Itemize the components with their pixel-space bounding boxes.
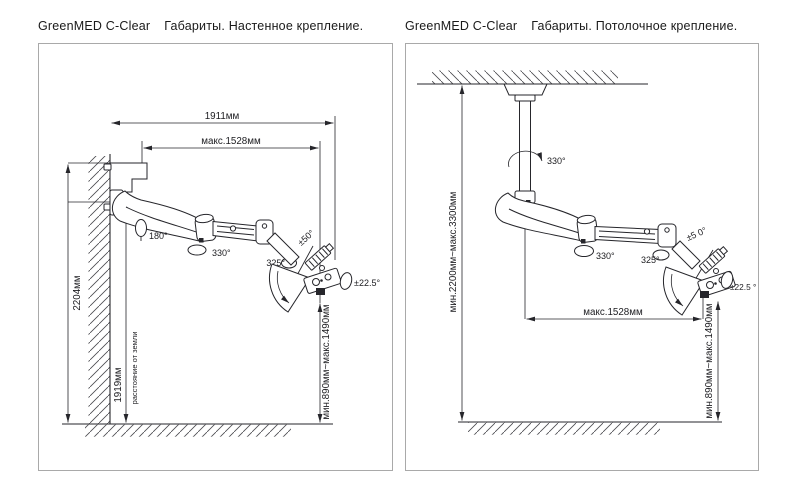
dim-label-head-range: мин.890мм~макс.1490мм xyxy=(321,304,332,420)
dim-label-column-range: мин.2200мм~макс.3300мм xyxy=(448,191,459,312)
rotation-cup-symbol xyxy=(188,245,206,255)
angle-label-arm: 330° xyxy=(596,251,615,261)
dim-label-max-ext: макс.1528мм xyxy=(583,307,643,318)
floor-hatching xyxy=(85,425,291,437)
dim-label-reach: 1911мм xyxy=(205,111,240,122)
head-tilt-symbol xyxy=(339,271,354,290)
technical-drawing: 1911мм макс.1528мм 2204мм 1919мм расстоя… xyxy=(0,0,800,500)
joint-detail xyxy=(199,238,204,243)
joint-detail xyxy=(581,239,586,244)
elbow-link xyxy=(672,241,700,269)
rotation-cup-symbol xyxy=(575,246,594,257)
angle-label-column: 330° xyxy=(547,156,566,166)
drop-column xyxy=(520,101,531,191)
dim-label-max-ext: макс.1528мм xyxy=(201,136,261,147)
spring-arm xyxy=(213,220,273,244)
angle-label-elbow: ±5 0° xyxy=(685,225,709,243)
dim-label-pivot-height: 1919мм xyxy=(113,367,124,403)
tilt-sector xyxy=(270,264,310,312)
angle-label-elbow: ±50° xyxy=(296,228,317,248)
ceiling-hatching xyxy=(432,71,618,84)
angle-label-spring: 325° xyxy=(641,255,660,265)
ceiling-mount-drawing: мин.2200мм~макс.3300мм 330° 330° xyxy=(417,71,756,435)
angle-label-head: ±22.5° xyxy=(354,278,380,288)
dim-note-ground: расстояние от земли xyxy=(130,332,139,405)
lamp-base-block xyxy=(700,291,709,298)
angle-label-arm: 330° xyxy=(212,248,231,258)
wall-mount-drawing: 1911мм макс.1528мм 2204мм 1919мм расстоя… xyxy=(62,111,380,437)
main-arm xyxy=(495,193,592,242)
dim-label-head-range: мин.890мм~макс.1490мм xyxy=(704,303,715,419)
floor-hatching xyxy=(468,423,660,435)
angle-label-head: ±22.5 ° xyxy=(730,282,756,292)
ceiling-mount xyxy=(504,84,547,205)
lamp-head xyxy=(664,245,736,319)
spring-arm xyxy=(595,224,676,247)
dim-label-mount-height: 2204мм xyxy=(72,275,83,311)
lamp-base-block xyxy=(316,288,325,295)
rotation-axis-symbol xyxy=(136,220,147,237)
angle-label-mount: 180° xyxy=(149,231,168,241)
wall-hatching xyxy=(89,156,110,424)
